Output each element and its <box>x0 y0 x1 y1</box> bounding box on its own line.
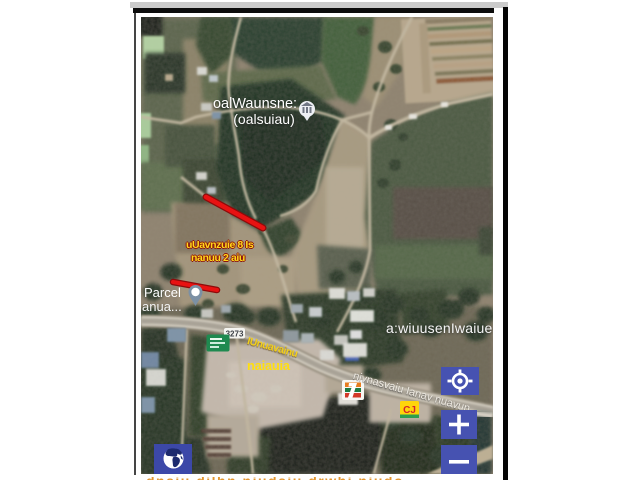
svg-text:CJ: CJ <box>403 405 416 416</box>
